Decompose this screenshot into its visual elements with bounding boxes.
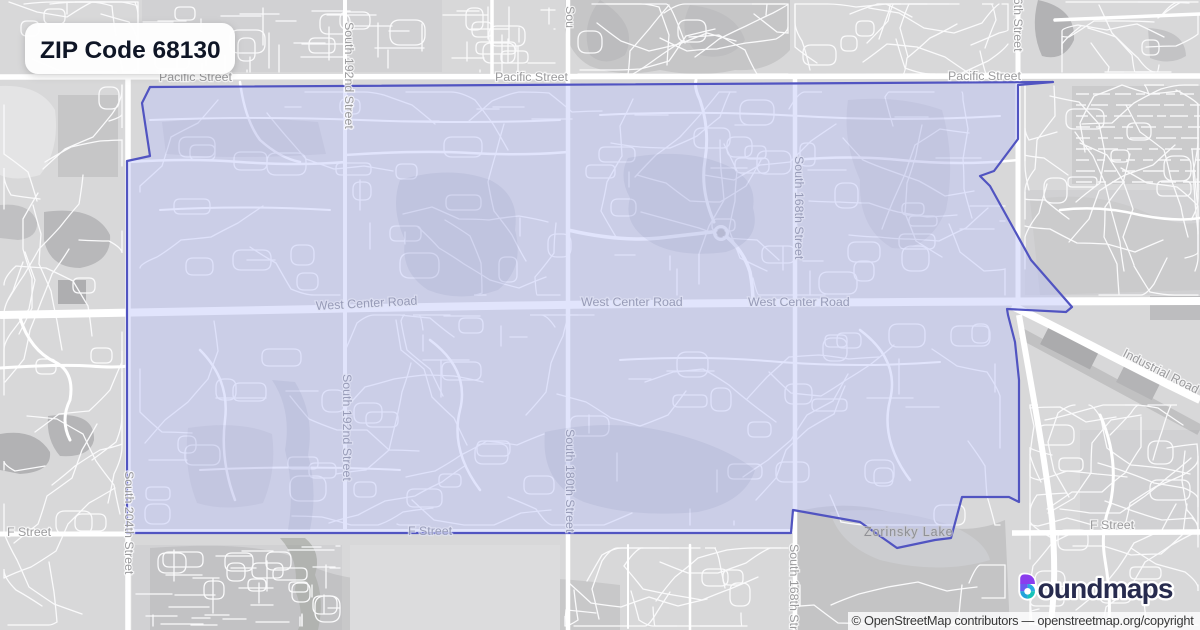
- svg-text:F Street: F Street: [1090, 518, 1135, 532]
- svg-text:Pacific Street: Pacific Street: [495, 70, 569, 84]
- svg-text:156th Street: 156th Street: [1011, 0, 1025, 52]
- svg-text:Sou: Sou: [563, 6, 577, 28]
- svg-text:South 192nd Street: South 192nd Street: [340, 374, 354, 481]
- svg-text:oundmaps: oundmaps: [1038, 573, 1173, 604]
- svg-text:South 168th Street: South 168th Street: [792, 156, 806, 260]
- svg-text:ZIP Code 68130: ZIP Code 68130: [40, 37, 221, 64]
- svg-text:West Center Road: West Center Road: [581, 295, 683, 309]
- svg-text:F Street: F Street: [7, 525, 52, 539]
- svg-text:South 180th Street: South 180th Street: [563, 429, 577, 533]
- svg-text:South 192nd Street: South 192nd Street: [342, 22, 356, 129]
- svg-text:West Center Road: West Center Road: [748, 295, 850, 309]
- svg-text:South 204th Street: South 204th Street: [122, 471, 136, 575]
- svg-text:F Street: F Street: [408, 524, 453, 538]
- svg-text:South 168th Street: South 168th Street: [787, 544, 801, 630]
- svg-text:© OpenStreetMap contributors —: © OpenStreetMap contributors — openstree…: [852, 613, 1195, 628]
- svg-text:Zorinsky Lake: Zorinsky Lake: [864, 525, 954, 539]
- svg-text:Pacific Street: Pacific Street: [948, 69, 1022, 83]
